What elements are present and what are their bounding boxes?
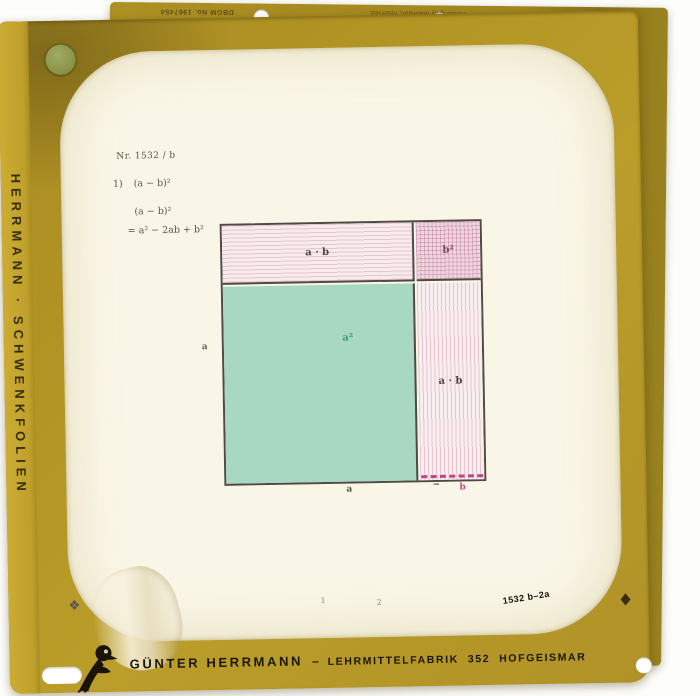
footer-imprint: GÜNTER HERRMANN – LEHRMITTELFABRIK 352 H… xyxy=(130,648,587,671)
herrmann-logo-icon xyxy=(75,642,118,693)
item-number: 1) xyxy=(113,179,123,190)
equation-item: 1)(a − b)² xyxy=(113,178,171,190)
region-label: b² xyxy=(442,245,454,256)
region-b-squared: b² xyxy=(416,221,481,281)
axis-label-a-bottom: a xyxy=(346,485,352,495)
side-brand-label: HERRMANN · SCHWENKFOLIEN xyxy=(8,173,30,545)
postal-code: 352 xyxy=(468,653,491,665)
city-label: HOFGEISMAR xyxy=(499,651,586,665)
region-label: a · b xyxy=(438,375,462,386)
registration-mark-icon: ❖ xyxy=(68,599,80,612)
film-window: Nr. 1532 / b 1)(a − b)² (a − b)² = a² − … xyxy=(58,43,623,643)
axis-label-a-left: a xyxy=(202,342,208,352)
brand-name: GÜNTER HERRMANN xyxy=(130,653,304,671)
frame-number-2: 2 xyxy=(377,598,382,607)
expression: (a − b)² xyxy=(134,178,171,190)
identity-diagram: a · b b² a² a · b xyxy=(220,219,487,486)
equation-step-rhs: = a² − 2ab + b² xyxy=(128,224,204,236)
punch-hole xyxy=(636,657,652,673)
footer-dash: – xyxy=(312,654,319,668)
mount-frame: HERRMANN · SCHWENKFOLIEN Nr. 1532 / b 1)… xyxy=(0,10,650,694)
subtraction-dash-line xyxy=(421,474,483,478)
dbgm-number: DBGM No. 1967454 xyxy=(136,7,258,15)
axis-label-b-bottom: b xyxy=(459,482,465,492)
factory-label: LEHRMITTELFABRIK xyxy=(328,654,459,668)
transparency-photo: DBGM No. 1967454 Copyright and all right… xyxy=(0,0,700,696)
region-a-squared: a² xyxy=(223,283,419,483)
region-ab-top: a · b xyxy=(222,222,415,285)
registration-slot xyxy=(42,666,82,684)
side-strip: HERRMANN · SCHWENKFOLIEN xyxy=(0,21,40,693)
swivel-rivet xyxy=(45,45,76,76)
registration-mark-icon: ◆ xyxy=(620,590,630,606)
minus-sign: − xyxy=(432,480,440,490)
equation-step-lhs: (a − b)² xyxy=(134,206,171,218)
region-ab-right: a · b xyxy=(417,282,485,480)
sheet-number: Nr. 1532 / b xyxy=(116,151,175,162)
frame-number-1: 1 xyxy=(320,596,325,605)
region-label: a · b xyxy=(305,247,329,258)
region-label: a² xyxy=(342,332,353,343)
